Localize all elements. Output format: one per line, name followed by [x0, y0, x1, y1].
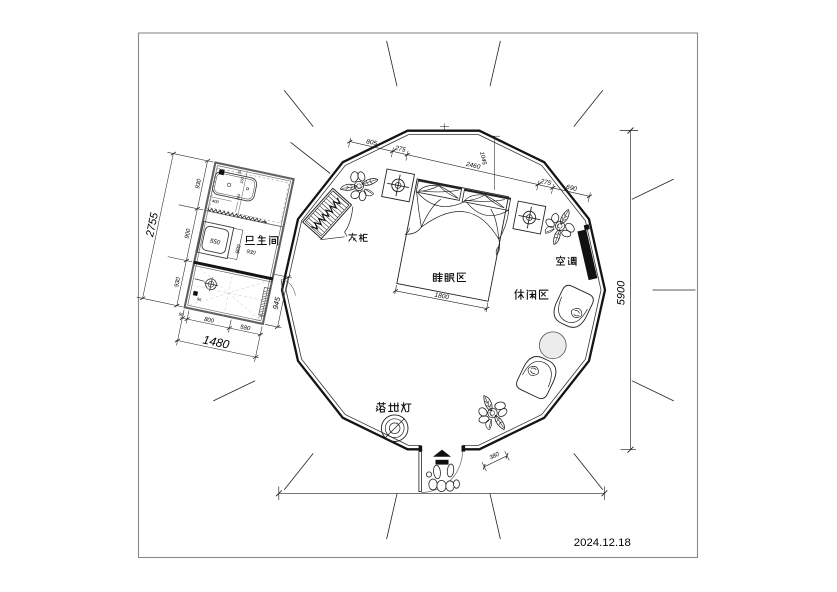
- svg-text:1480: 1480: [202, 332, 231, 351]
- svg-text:1800: 1800: [434, 292, 450, 302]
- svg-text:290: 290: [236, 193, 242, 202]
- svg-text:275: 275: [539, 178, 552, 188]
- svg-text:930: 930: [246, 249, 257, 257]
- svg-text:400: 400: [211, 198, 220, 204]
- svg-text:805: 805: [365, 138, 378, 147]
- svg-text:30: 30: [237, 169, 242, 175]
- svg-text:5900: 5900: [616, 280, 628, 305]
- svg-text:275: 275: [393, 144, 406, 154]
- svg-text:160: 160: [240, 176, 245, 184]
- svg-text:900: 900: [235, 243, 243, 254]
- svg-text:945: 945: [271, 295, 283, 310]
- svg-text:550: 550: [209, 238, 221, 247]
- svg-text:380: 380: [489, 451, 501, 461]
- svg-text:800: 800: [203, 317, 215, 325]
- svg-text:580: 580: [240, 325, 252, 333]
- svg-text:2024.12.18: 2024.12.18: [574, 537, 631, 549]
- svg-text:90: 90: [178, 311, 184, 317]
- svg-text:2755: 2755: [144, 211, 161, 239]
